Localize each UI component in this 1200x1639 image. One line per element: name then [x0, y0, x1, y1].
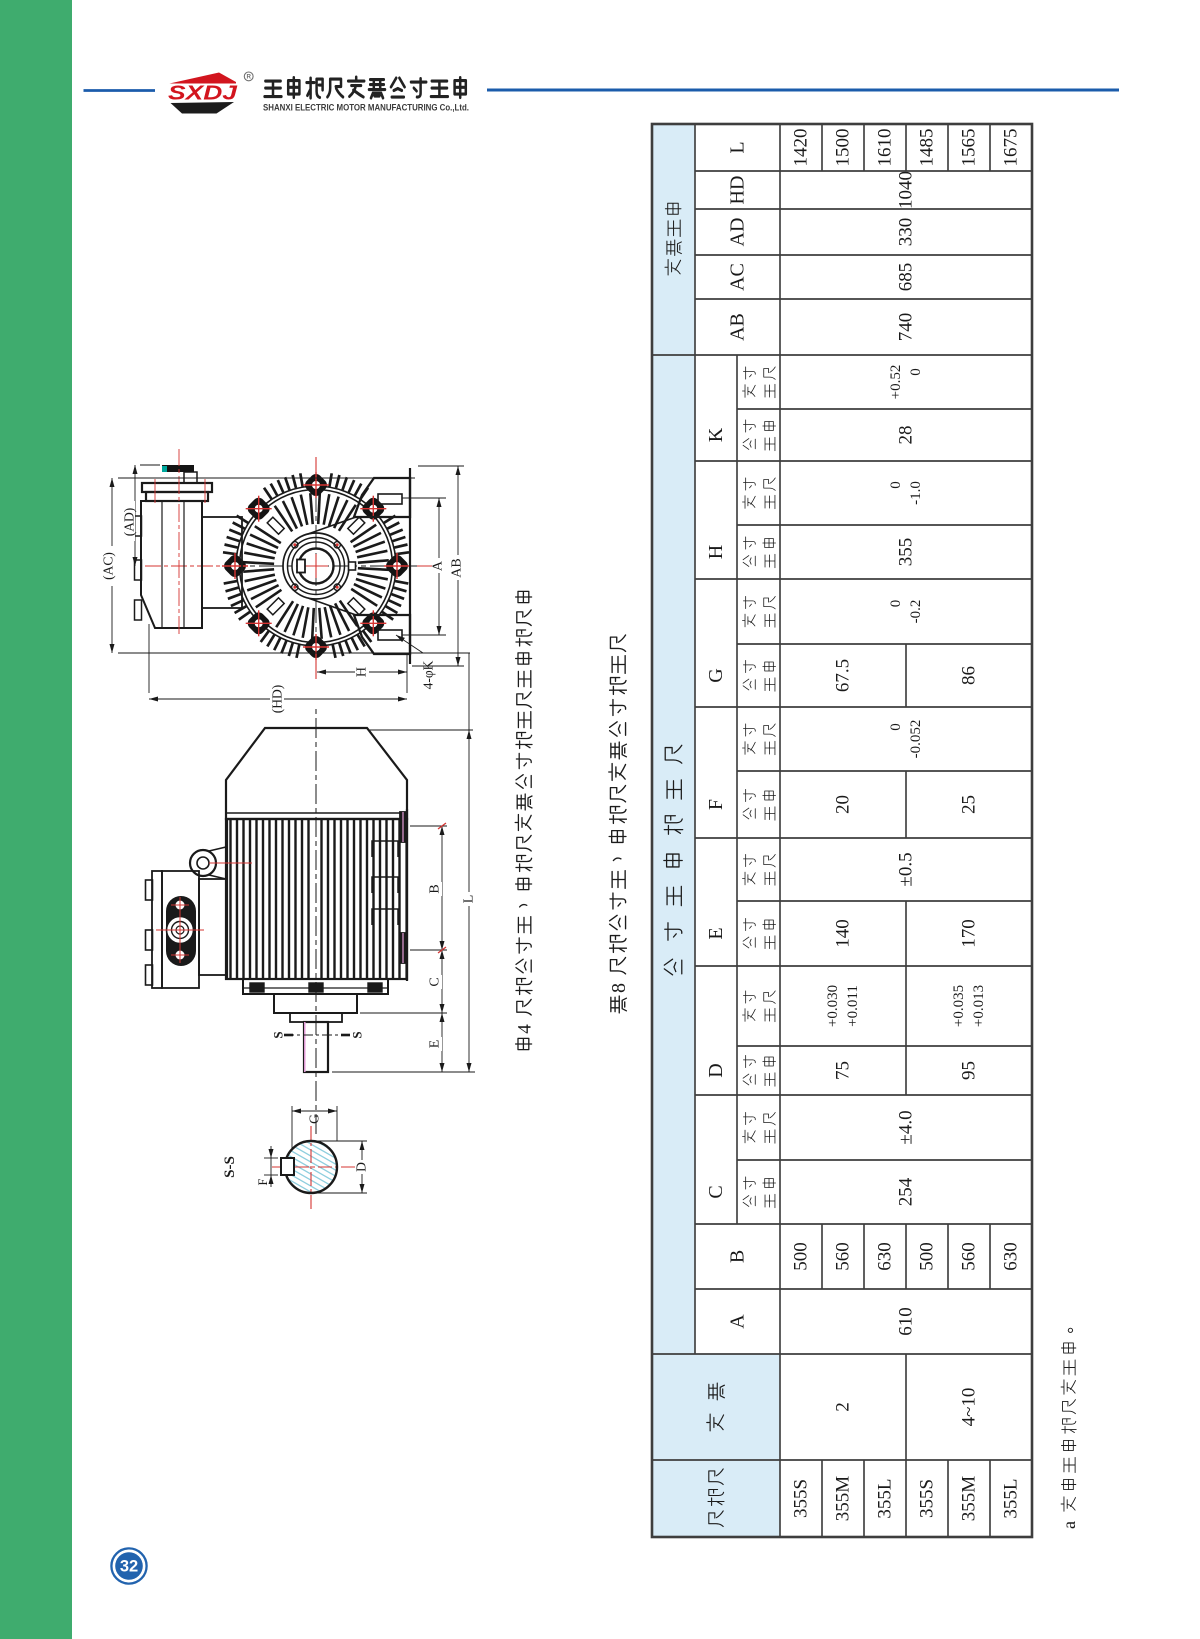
svg-text:610: 610 [896, 1307, 917, 1336]
svg-text:AD: AD [727, 218, 749, 247]
svg-text:±4.0: ±4.0 [896, 1110, 917, 1144]
svg-text:R: R [246, 73, 251, 80]
svg-text:(AD): (AD) [122, 508, 137, 537]
svg-text:2: 2 [833, 1402, 854, 1412]
svg-text:S-S: S-S [222, 1156, 238, 1178]
svg-text:500: 500 [917, 1242, 938, 1271]
svg-text:685: 685 [896, 263, 917, 292]
svg-text:A: A [727, 1314, 749, 1329]
svg-text:4: 4 [515, 1024, 536, 1034]
svg-text:+0.52: +0.52 [888, 365, 904, 400]
svg-text:630: 630 [875, 1242, 896, 1271]
svg-text:SXDJ: SXDJ [168, 83, 238, 105]
svg-text:a: a [1059, 1521, 1079, 1529]
svg-text:C: C [705, 1185, 727, 1198]
svg-text:S: S [350, 1031, 365, 1038]
svg-text:(AC): (AC) [101, 552, 116, 580]
svg-text:H: H [355, 667, 370, 677]
svg-text:560: 560 [833, 1242, 854, 1271]
svg-text:AB: AB [450, 558, 465, 577]
svg-text:L: L [727, 141, 749, 153]
svg-text:+0.013: +0.013 [971, 985, 987, 1027]
svg-text:67.5: 67.5 [833, 659, 854, 692]
svg-text:355S: 355S [791, 1479, 812, 1518]
svg-text:D: D [705, 1063, 727, 1077]
svg-text:20: 20 [833, 795, 854, 814]
svg-text:4-φK: 4-φK [421, 660, 436, 689]
svg-text:-0.052: -0.052 [908, 720, 924, 759]
svg-text:25: 25 [959, 795, 980, 814]
svg-text:4~10: 4~10 [959, 1388, 980, 1427]
svg-text:+0.011: +0.011 [845, 985, 861, 1027]
svg-text:254: 254 [896, 1177, 917, 1206]
svg-text:+0.030: +0.030 [825, 985, 841, 1027]
svg-text:D: D [354, 1162, 369, 1172]
svg-text:75: 75 [833, 1061, 854, 1080]
svg-text:95: 95 [959, 1061, 980, 1080]
svg-text:B: B [428, 884, 443, 893]
svg-text:355L: 355L [1001, 1478, 1022, 1518]
svg-text:HD: HD [727, 176, 749, 205]
svg-text:B: B [727, 1250, 749, 1263]
svg-text:(HD): (HD) [270, 685, 285, 714]
svg-text:AC: AC [727, 263, 749, 291]
svg-text:AB: AB [727, 313, 749, 341]
svg-text:0: 0 [888, 481, 904, 489]
svg-text:+0.035: +0.035 [951, 985, 967, 1027]
svg-text:E: E [705, 927, 727, 939]
svg-text:86: 86 [959, 666, 980, 685]
svg-text:355M: 355M [959, 1476, 980, 1522]
svg-text:1420: 1420 [791, 129, 812, 167]
svg-text:1485: 1485 [917, 129, 938, 167]
svg-text:F: F [256, 1178, 270, 1185]
svg-text:SHANXI ELECTRIC MOTOR MANUFACT: SHANXI ELECTRIC MOTOR MANUFACTURING Co.,… [263, 103, 469, 113]
svg-text:560: 560 [959, 1242, 980, 1271]
svg-text:355L: 355L [875, 1478, 896, 1518]
svg-text:28: 28 [896, 426, 917, 445]
svg-text:1040: 1040 [896, 171, 917, 209]
svg-text:±0.5: ±0.5 [896, 852, 917, 886]
svg-text:140: 140 [833, 919, 854, 948]
svg-text:F: F [705, 799, 727, 810]
svg-text:-1.0: -1.0 [908, 481, 924, 505]
svg-text:170: 170 [959, 919, 980, 948]
svg-text:32: 32 [120, 1558, 138, 1576]
svg-text:G: G [307, 1114, 322, 1124]
svg-text:0: 0 [908, 368, 924, 376]
svg-text:500: 500 [791, 1242, 812, 1271]
svg-text:S: S [271, 1031, 286, 1038]
svg-text:-0.2: -0.2 [908, 600, 924, 624]
svg-text:740: 740 [896, 313, 917, 342]
svg-text:355: 355 [896, 538, 917, 567]
svg-text:1565: 1565 [959, 129, 980, 167]
svg-text:330: 330 [896, 218, 917, 247]
svg-text:1675: 1675 [1001, 129, 1022, 167]
svg-text:A: A [431, 560, 446, 571]
svg-text:C: C [428, 977, 443, 986]
svg-text:1610: 1610 [875, 129, 896, 167]
svg-text:H: H [705, 545, 727, 559]
svg-text:0: 0 [888, 600, 904, 608]
svg-text:G: G [705, 668, 727, 682]
svg-text:E: E [428, 1040, 443, 1049]
svg-text:355S: 355S [917, 1479, 938, 1518]
svg-text:K: K [705, 427, 727, 442]
svg-text:0: 0 [888, 723, 904, 731]
svg-text:8: 8 [608, 983, 630, 993]
svg-text:630: 630 [1001, 1242, 1022, 1271]
svg-text:1500: 1500 [833, 129, 854, 167]
svg-text:355M: 355M [833, 1476, 854, 1522]
svg-text:L: L [462, 895, 477, 904]
